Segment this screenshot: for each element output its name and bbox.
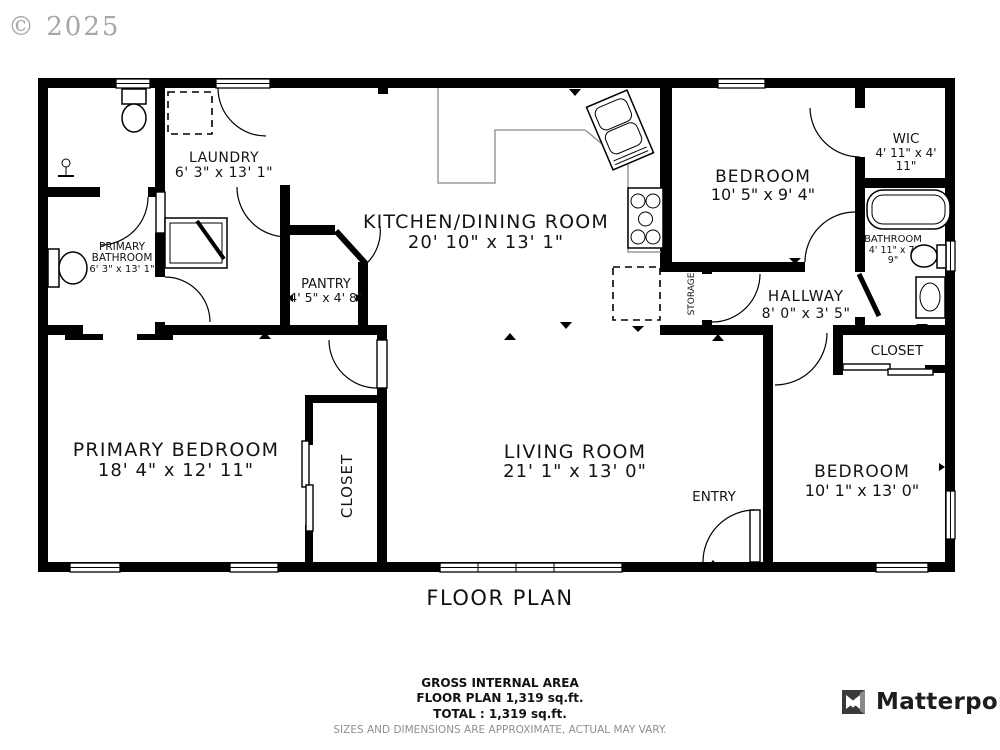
room-label-laundry: LAUNDRY: [189, 150, 259, 166]
floor-plan-drawing: LAUNDRY 6' 3" x 13' 1" KITCHEN/DINING RO…: [0, 0, 1000, 750]
room-label-entry: ENTRY: [692, 489, 736, 505]
room-label-bedroom-top: BEDROOM: [715, 167, 811, 187]
room-dims-living-room: 21' 1" x 13' 0": [503, 461, 647, 482]
refrigerator-dashed: [613, 267, 660, 320]
room-label-hallway: HALLWAY: [768, 287, 844, 305]
room-label-closet-primary: CLOSET: [338, 454, 356, 518]
matterport-logo-text: Matterport: [876, 689, 1000, 715]
room-dims-wic-1: 4' 11" x 4': [875, 146, 936, 160]
room-dims-primary-bedroom: 18' 4" x 12' 11": [98, 460, 254, 481]
bathtub: [867, 190, 950, 229]
disclaimer-text: SIZES AND DIMENSIONS ARE APPROXIMATE, AC…: [0, 724, 1000, 737]
room-label-kitchen: KITCHEN/DINING ROOM: [363, 211, 609, 233]
room-label-wic: WIC: [893, 131, 920, 147]
room-dims-primary-bathroom: 6' 3" x 13' 1": [89, 264, 154, 275]
kitchen-sink: [586, 90, 653, 170]
room-dims-pantry: 4' 5" x 4' 8": [289, 290, 362, 305]
room-dims-bedroom-bottom: 10' 1" x 13' 0": [805, 481, 919, 500]
room-label-primary-bathroom-2: BATHROOM: [92, 252, 153, 264]
floor-plan-page: © 2025: [0, 0, 1000, 750]
room-dims-wic-2: 11": [896, 159, 917, 173]
wc-toilet: [122, 89, 146, 132]
matterport-branding: Matterport: [840, 688, 1000, 716]
plan-title: FLOOR PLAN: [0, 586, 1000, 610]
stove: [628, 188, 663, 248]
matterport-cube-icon: [840, 688, 867, 716]
shower-valve-icon: [58, 159, 74, 176]
primary-toilet: [48, 249, 87, 287]
room-label-primary-bedroom: PRIMARY BEDROOM: [73, 439, 279, 461]
room-label-storage: STORAGE: [687, 272, 697, 315]
room-dims-laundry: 6' 3" x 13' 1": [175, 165, 273, 181]
room-dims-hallway: 8' 0" x 3' 5": [762, 306, 851, 322]
washer-dashed: [168, 92, 212, 134]
room-label-living-room: LIVING ROOM: [504, 441, 646, 463]
room-dims-bedroom-top: 10' 5" x 9' 4": [711, 185, 815, 204]
room-label-bathroom-right: BATHROOM: [864, 234, 922, 245]
shower-stall: [165, 218, 227, 268]
vanity-sink: [916, 277, 945, 318]
room-dims-kitchen: 20' 10" x 13' 1": [408, 232, 564, 253]
room-label-closet-hall: CLOSET: [871, 343, 924, 359]
room-label-bedroom-bottom: BEDROOM: [814, 462, 910, 482]
room-dims-bathroom-right-2: 9": [888, 255, 898, 266]
